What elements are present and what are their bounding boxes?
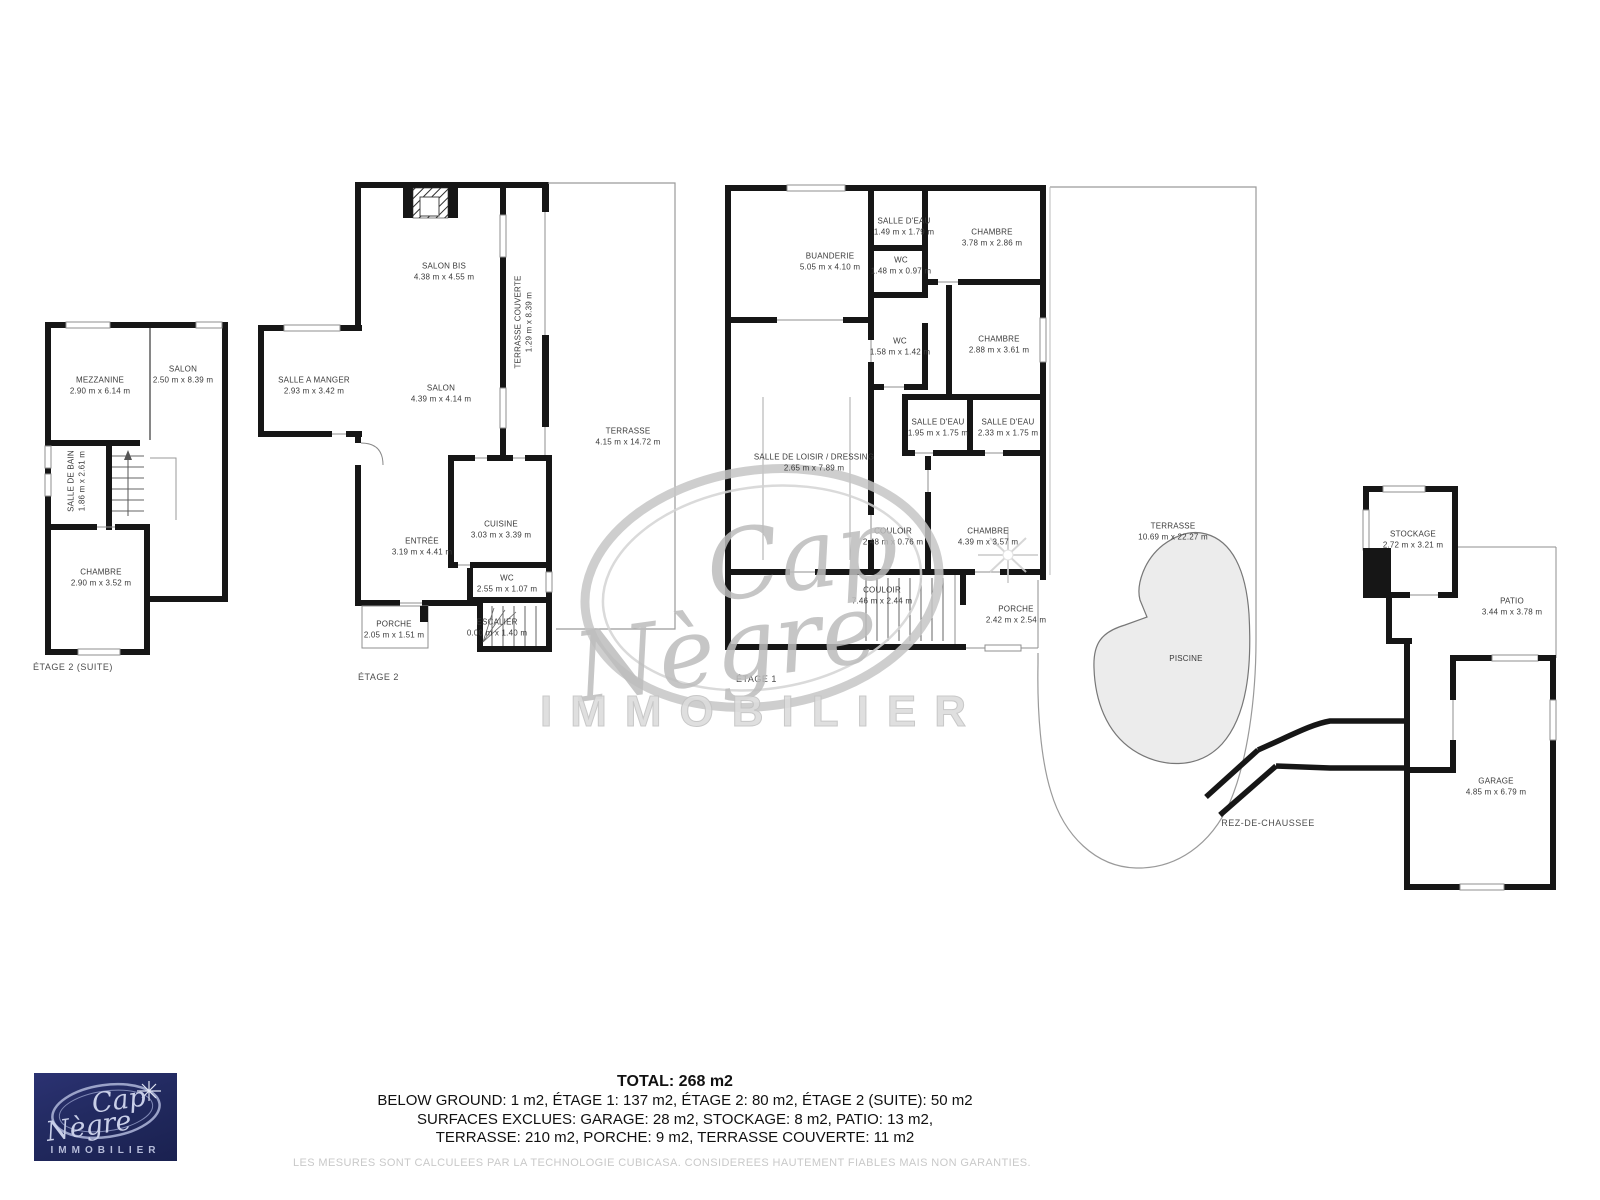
room-label: SALON BIS4.38 m x 4.55 m (414, 262, 474, 283)
floor-label-etage2-suite: ÉTAGE 2 (SUITE) (33, 662, 113, 672)
room-label: PISCINE (1169, 654, 1202, 665)
agency-logo: Cap Nègre IMMOBILIER (34, 1073, 177, 1161)
room-label: CHAMBRE2.88 m x 3.61 m (969, 335, 1029, 356)
room-label: BUANDERIE5.05 m x 4.10 m (800, 252, 860, 273)
room-label: STOCKAGE2.72 m x 3.21 m (1383, 530, 1443, 551)
room-label: MEZZANINE2.90 m x 6.14 m (70, 376, 130, 397)
room-label: PORCHE2.42 m x 2.54 m (986, 605, 1046, 626)
room-label: WC2.55 m x 1.07 m (477, 574, 537, 595)
room-label: WC1.48 m x 0.97 m (871, 256, 931, 277)
plan-etage2 (258, 182, 675, 652)
room-label: SALLE D'EAU1.49 m x 1.79 m (874, 217, 934, 238)
agency-logo-emblem: Cap Nègre (34, 1073, 177, 1149)
room-label: TERRASSE4.15 m x 14.72 m (595, 427, 660, 448)
floor-label-rdc: REZ-DE-CHAUSSEE (1221, 818, 1315, 828)
room-label: GARAGE4.85 m x 6.79 m (1466, 777, 1526, 798)
room-label: TERRASSE10.69 m x 22.27 m (1138, 522, 1208, 543)
total-surface: TOTAL: 268 m2 (377, 1072, 972, 1092)
summary-line-3: TERRASSE: 210 m2, PORCHE: 9 m2, TERRASSE… (377, 1129, 972, 1148)
floor-label-etage2: ÉTAGE 2 (358, 672, 399, 682)
room-label: SALON4.39 m x 4.14 m (411, 384, 471, 405)
logo-word-immobilier: IMMOBILIER (51, 1145, 161, 1156)
room-label: SALLE DE LOISIR / DRESSING2.65 m x 7.89 … (754, 453, 874, 474)
room-label: PORCHE2.05 m x 1.51 m (364, 620, 424, 641)
floorplan-sheet: MEZZANINE2.90 m x 6.14 m SALON2.50 m x 8… (0, 0, 1600, 1200)
room-label: SALLE A MANGER2.93 m x 3.42 m (278, 376, 350, 397)
room-label: PATIO3.44 m x 3.78 m (1482, 597, 1542, 618)
room-label: CHAMBRE2.90 m x 3.52 m (71, 568, 131, 589)
room-label: SALLE D'EAU2.33 m x 1.75 m (978, 418, 1038, 439)
summary-line-1: BELOW GROUND: 1 m2, ÉTAGE 1: 137 m2, ÉTA… (377, 1092, 972, 1111)
room-label: SALON2.50 m x 8.39 m (153, 365, 213, 386)
watermark-ellipse (569, 446, 1038, 729)
room-label: CHAMBRE4.39 m x 3.57 m (958, 527, 1018, 548)
floor-label-etage1: ÉTAGE 1 (736, 674, 777, 684)
room-label: COULOIR2.48 m x 0.76 m (863, 527, 923, 548)
room-label: CUISINE3.03 m x 3.39 m (471, 520, 531, 541)
surface-summary: TOTAL: 268 m2 BELOW GROUND: 1 m2, ÉTAGE … (377, 1072, 972, 1148)
room-label: ESCALIER0.00 m x 1.40 m (467, 618, 527, 639)
pool-shape (1094, 532, 1250, 763)
room-label: SALLE DE BAIN1.86 m x 2.61 m (67, 450, 88, 512)
plan-rdc (1038, 187, 1406, 868)
room-label: SALLE D'EAU1.95 m x 1.75 m (908, 418, 968, 439)
room-label: ENTRÉE3.19 m x 4.41 m (392, 537, 452, 558)
room-label: WC1.58 m x 1.42 m (870, 337, 930, 358)
floorplan-drawing (0, 0, 1600, 1200)
logo-word-negre: Nègre (43, 1105, 133, 1148)
measurement-disclaimer: LES MESURES SONT CALCULEES PAR LA TECHNO… (293, 1157, 1031, 1169)
summary-line-2: SURFACES EXCLUES: GARAGE: 28 m2, STOCKAG… (377, 1111, 972, 1130)
room-label: TERRASSE COUVERTE1.29 m x 8.39 m (514, 275, 535, 368)
room-label: COULOIR7.46 m x 2.44 m (852, 586, 912, 607)
room-label: CHAMBRE3.78 m x 2.86 m (962, 228, 1022, 249)
